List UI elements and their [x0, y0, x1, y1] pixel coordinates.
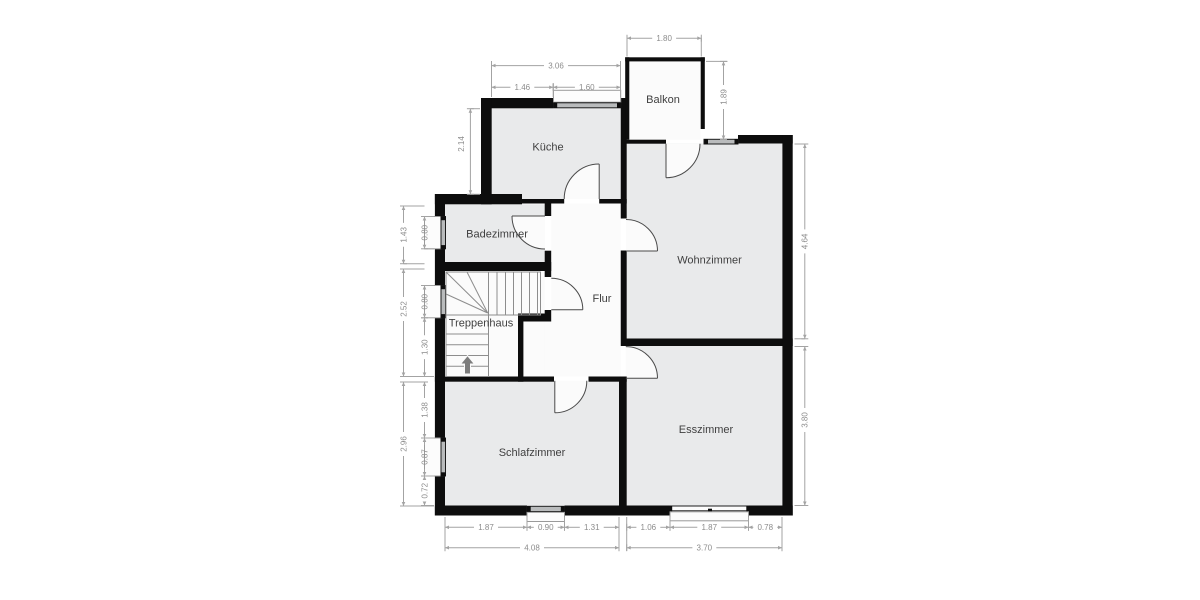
- svg-text:0.72: 0.72: [420, 482, 429, 498]
- svg-text:3.06: 3.06: [548, 61, 564, 70]
- svg-text:1.46: 1.46: [515, 83, 531, 92]
- svg-text:Küche: Küche: [532, 142, 563, 154]
- svg-text:3.70: 3.70: [697, 544, 713, 553]
- svg-text:1.87: 1.87: [478, 523, 494, 532]
- svg-text:0.87: 0.87: [420, 449, 429, 465]
- svg-text:2.96: 2.96: [399, 436, 408, 452]
- svg-text:1.87: 1.87: [701, 523, 717, 532]
- svg-text:Flur: Flur: [593, 293, 612, 305]
- svg-text:1.38: 1.38: [420, 402, 429, 418]
- svg-text:1.31: 1.31: [584, 523, 600, 532]
- svg-text:Balkon: Balkon: [646, 94, 680, 106]
- svg-text:1.60: 1.60: [579, 83, 595, 92]
- svg-text:3.80: 3.80: [801, 412, 810, 428]
- svg-text:0.80: 0.80: [420, 293, 429, 309]
- svg-text:1.89: 1.89: [719, 89, 728, 105]
- svg-text:1.80: 1.80: [656, 34, 672, 43]
- svg-text:0.90: 0.90: [538, 523, 554, 532]
- svg-text:Schlafzimmer: Schlafzimmer: [499, 447, 566, 459]
- svg-text:Treppenhaus: Treppenhaus: [449, 318, 514, 330]
- svg-text:4.64: 4.64: [801, 233, 810, 249]
- svg-text:4.08: 4.08: [524, 544, 540, 553]
- svg-text:1.30: 1.30: [420, 339, 429, 355]
- svg-text:2.14: 2.14: [457, 136, 466, 152]
- svg-text:1.06: 1.06: [641, 523, 657, 532]
- svg-text:1.43: 1.43: [399, 227, 408, 243]
- svg-text:2.52: 2.52: [399, 301, 408, 317]
- svg-text:Wohnzimmer: Wohnzimmer: [677, 255, 742, 267]
- svg-text:0.80: 0.80: [420, 224, 429, 240]
- svg-text:Esszimmer: Esszimmer: [679, 424, 734, 436]
- svg-text:Badezimmer: Badezimmer: [466, 229, 528, 241]
- svg-text:0.78: 0.78: [757, 523, 773, 532]
